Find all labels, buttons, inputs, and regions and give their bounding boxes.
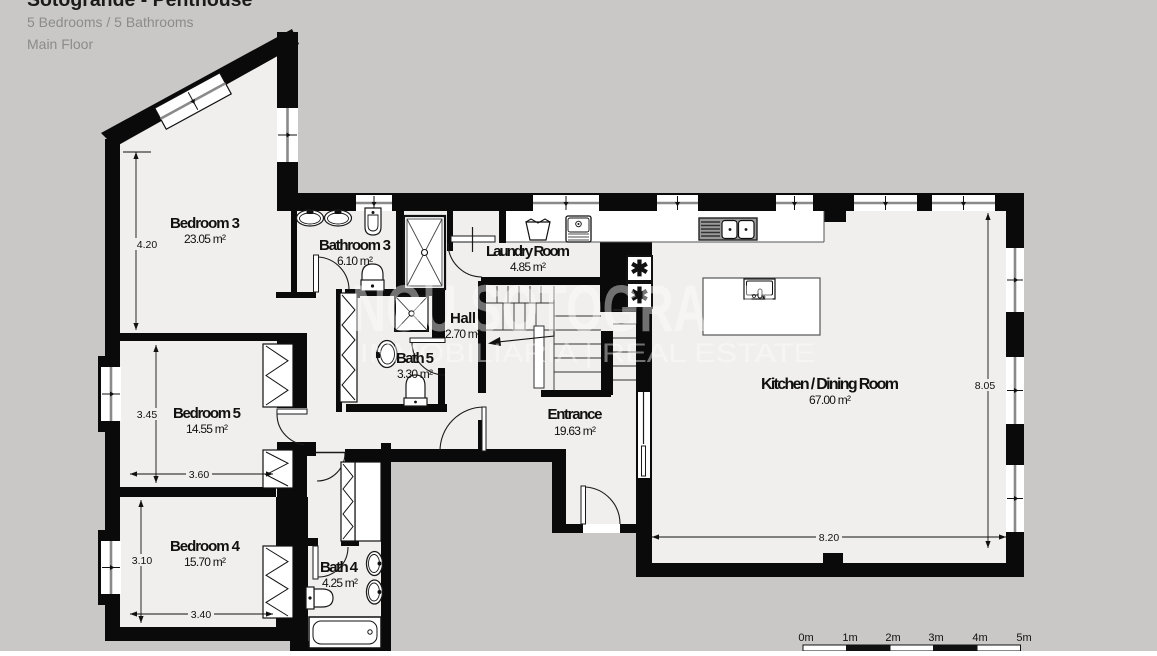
svg-text:4.25 m²: 4.25 m² (322, 576, 358, 590)
svg-text:Bedroom 4: Bedroom 4 (170, 538, 241, 555)
svg-text:8.20: 8.20 (819, 532, 840, 544)
svg-text:8.05: 8.05 (975, 380, 996, 392)
svg-text:Kitchen / Dining Room: Kitchen / Dining Room (761, 376, 899, 393)
svg-text:0m: 0m (798, 632, 813, 644)
svg-text:Bath 4: Bath 4 (320, 559, 359, 576)
svg-text:2m: 2m (885, 632, 900, 644)
svg-text:Bedroom 3: Bedroom 3 (170, 215, 240, 232)
svg-text:3.60: 3.60 (189, 469, 210, 481)
svg-text:Bedroom 5: Bedroom 5 (173, 405, 241, 422)
svg-text:23.05 m²: 23.05 m² (184, 232, 226, 246)
svg-text:Main Floor: Main Floor (27, 36, 93, 52)
svg-text:3m: 3m (928, 632, 943, 644)
svg-text:NOU SOTOGRANDE: NOU SOTOGRANDE (352, 271, 807, 345)
svg-text:4.85 m²: 4.85 m² (510, 260, 546, 274)
svg-text:3.10: 3.10 (132, 555, 153, 567)
svg-text:Bathroom 3: Bathroom 3 (319, 237, 391, 254)
svg-text:2.70 m²: 2.70 m² (445, 327, 481, 341)
svg-text:15.70 m²: 15.70 m² (184, 555, 226, 569)
svg-text:Sotogrande - Penthouse: Sotogrande - Penthouse (27, 0, 253, 11)
svg-text:6.10 m²: 6.10 m² (337, 254, 373, 268)
svg-text:5m: 5m (1016, 632, 1031, 644)
svg-text:Entrance: Entrance (548, 406, 603, 423)
svg-text:Bath 5: Bath 5 (396, 350, 434, 367)
svg-text:Hall: Hall (450, 310, 476, 327)
svg-text:4m: 4m (972, 632, 987, 644)
svg-text:5 Bedrooms / 5 Bathrooms: 5 Bedrooms / 5 Bathrooms (27, 14, 194, 30)
svg-text:3.45: 3.45 (137, 409, 158, 421)
svg-text:3.40: 3.40 (191, 609, 212, 621)
svg-text:67.00 m²: 67.00 m² (809, 393, 851, 407)
svg-text:4.20: 4.20 (137, 239, 158, 251)
svg-text:3.30 m²: 3.30 m² (397, 367, 433, 381)
svg-text:14.55 m²: 14.55 m² (186, 422, 228, 436)
svg-text:1m: 1m (842, 632, 857, 644)
svg-text:Laundry Room: Laundry Room (486, 243, 570, 260)
svg-text:19.63 m²: 19.63 m² (554, 424, 596, 438)
